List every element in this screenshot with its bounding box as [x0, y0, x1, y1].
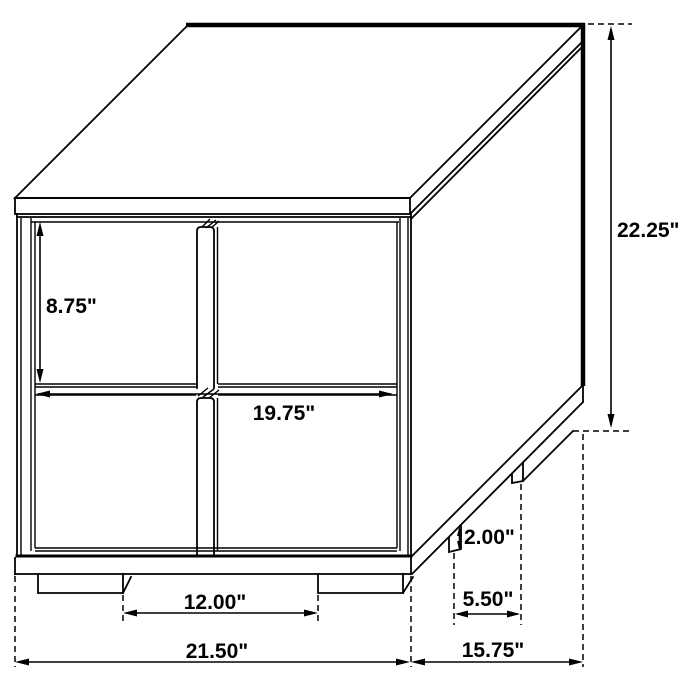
dim-label-side-leg-spacing: 5.50" [463, 588, 514, 611]
dim-label-overall-width: 21.50" [186, 640, 249, 663]
front-left-foot [38, 574, 123, 593]
drawer-handles [197, 219, 219, 556]
dim-label-overall-height: 22.25" [617, 219, 680, 242]
dim-overall-width: 21.50" [15, 640, 410, 666]
dim-overall-height: 22.25" [608, 26, 680, 428]
dim-label-drawer-height: 8.75" [46, 295, 97, 318]
nightstand-line-drawing: 8.75" 19.75" 22.25" 2.00" 5. [0, 0, 700, 700]
top-panel [15, 23, 585, 386]
dim-front-leg-spacing: 12.00" [123, 591, 318, 617]
dim-label-leg-height: 2.00" [464, 526, 515, 549]
dim-drawer-height: 8.75" [37, 222, 97, 383]
dim-leg-height: 2.00" [457, 526, 515, 551]
lower-handle-top-bevel [198, 388, 219, 398]
dim-label-drawer-width: 19.75" [253, 402, 316, 425]
feet [38, 431, 573, 593]
dim-side-leg-spacing: 5.50" [455, 588, 520, 618]
dim-label-front-leg-spacing: 12.00" [184, 591, 247, 614]
dim-label-overall-depth: 15.75" [462, 639, 525, 662]
extension-lines [15, 24, 632, 667]
dimension-annotations: 8.75" 19.75" 22.25" 2.00" 5. [15, 26, 680, 666]
front-right-foot [318, 574, 403, 593]
dim-overall-depth: 15.75" [411, 639, 583, 666]
furniture-dimension-diagram: 8.75" 19.75" 22.25" 2.00" 5. [0, 0, 700, 700]
side-panel [411, 46, 583, 557]
